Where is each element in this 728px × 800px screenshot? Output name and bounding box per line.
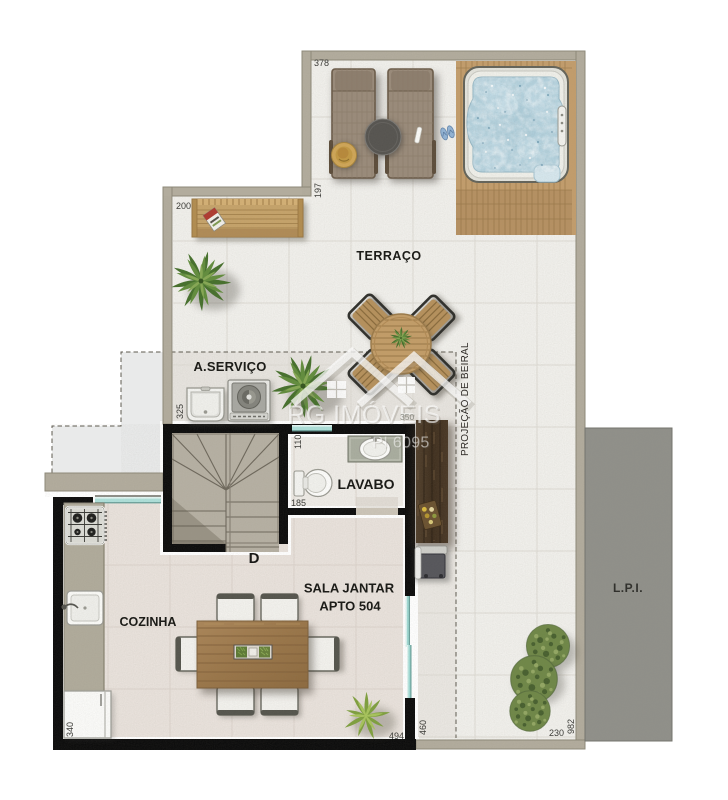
svg-text:LAVABO: LAVABO [337, 476, 394, 492]
svg-text:494: 494 [389, 731, 404, 741]
svg-text:185: 185 [291, 498, 306, 508]
svg-text:378: 378 [314, 58, 329, 68]
svg-text:APTO 504: APTO 504 [319, 599, 381, 614]
svg-text:A.SERVIÇO: A.SERVIÇO [193, 359, 266, 374]
svg-text:SALA JANTAR: SALA JANTAR [304, 581, 395, 596]
svg-text:200: 200 [176, 201, 191, 211]
svg-text:197: 197 [313, 183, 323, 198]
svg-text:110: 110 [293, 435, 303, 449]
svg-text:340: 340 [65, 722, 75, 737]
svg-text:460: 460 [418, 720, 428, 735]
svg-text:982: 982 [566, 719, 576, 734]
svg-text:PROJEÇÃO DE BEIRAL: PROJEÇÃO DE BEIRAL [458, 342, 471, 456]
svg-text:325: 325 [175, 404, 185, 419]
svg-text:350: 350 [400, 412, 414, 422]
svg-text:COZINHA: COZINHA [120, 615, 177, 629]
svg-text:TERRAÇO: TERRAÇO [356, 249, 421, 263]
svg-text:230: 230 [549, 728, 564, 738]
